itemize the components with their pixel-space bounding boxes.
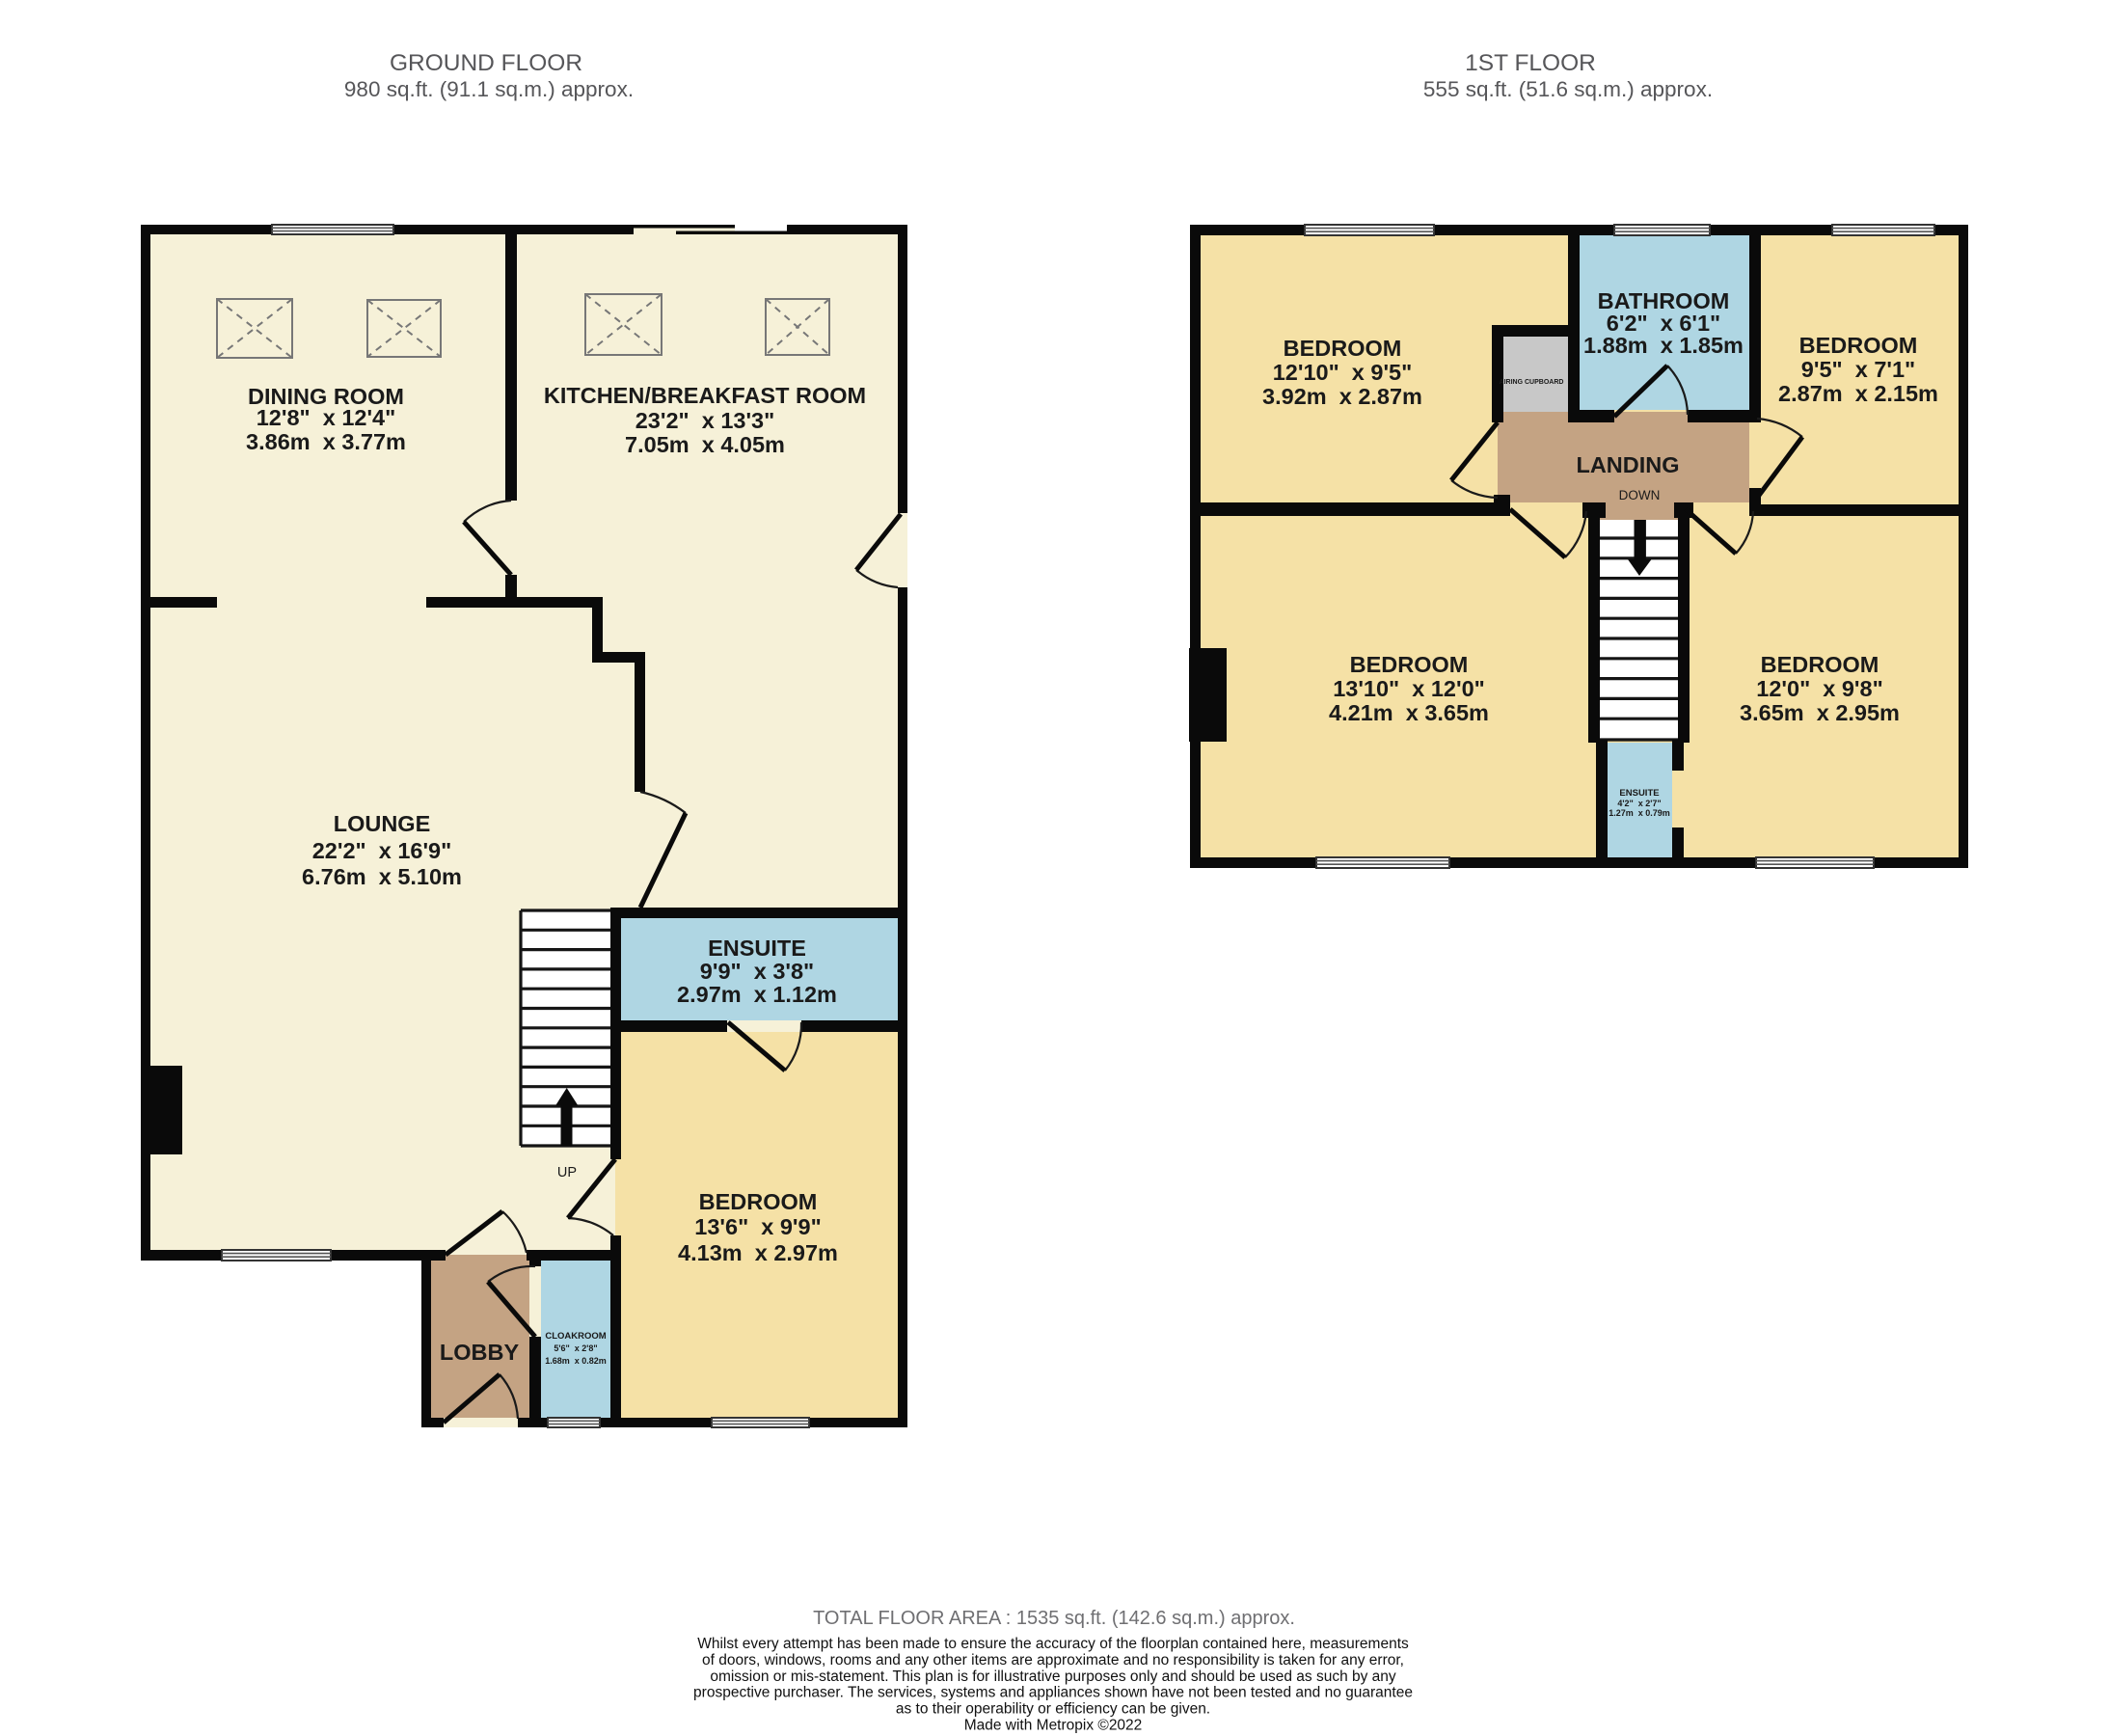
svg-text:TOTAL FLOOR AREA : 1535 sq.ft.: TOTAL FLOOR AREA : 1535 sq.ft. (142.6 sq… bbox=[813, 1608, 1295, 1629]
svg-text:9'9" x 3'8": 9'9" x 3'8" bbox=[700, 959, 814, 984]
svg-text:2.87m x 2.15m: 2.87m x 2.15m bbox=[1778, 381, 1938, 406]
svg-text:3.65m x 2.95m: 3.65m x 2.95m bbox=[1740, 700, 1900, 725]
svg-text:12'8" x 12'4": 12'8" x 12'4" bbox=[257, 405, 396, 430]
svg-text:555 sq.ft. (51.6 sq.m.) approx: 555 sq.ft. (51.6 sq.m.) approx. bbox=[1423, 77, 1713, 101]
svg-text:AIRING CUPBOARD: AIRING CUPBOARD bbox=[1500, 379, 1564, 386]
svg-text:4.13m x 2.97m: 4.13m x 2.97m bbox=[678, 1240, 838, 1265]
svg-text:UP: UP bbox=[557, 1165, 577, 1180]
svg-text:2.97m x 1.12m: 2.97m x 1.12m bbox=[677, 982, 837, 1007]
svg-text:4.21m x 3.65m: 4.21m x 3.65m bbox=[1329, 700, 1489, 725]
svg-text:4'2" x 2'7": 4'2" x 2'7" bbox=[1617, 799, 1661, 808]
svg-text:ENSUITE: ENSUITE bbox=[1619, 788, 1659, 799]
svg-text:12'0" x 9'8": 12'0" x 9'8" bbox=[1756, 676, 1882, 701]
svg-text:1.88m x 1.85m: 1.88m x 1.85m bbox=[1583, 333, 1744, 358]
svg-text:23'2" x 13'3": 23'2" x 13'3" bbox=[635, 408, 775, 433]
svg-text:5'6" x 2'8": 5'6" x 2'8" bbox=[554, 1343, 597, 1353]
svg-text:LANDING: LANDING bbox=[1576, 452, 1679, 477]
svg-text:of doors, windows, rooms and a: of doors, windows, rooms and any other i… bbox=[702, 1652, 1404, 1668]
svg-text:DOWN: DOWN bbox=[1619, 488, 1661, 502]
svg-text:7.05m x 4.05m: 7.05m x 4.05m bbox=[625, 432, 785, 457]
svg-text:GROUND FLOOR: GROUND FLOOR bbox=[390, 50, 582, 76]
svg-text:Whilst every attempt has been: Whilst every attempt has been made to en… bbox=[697, 1636, 1409, 1652]
svg-text:1.68m x 0.82m: 1.68m x 0.82m bbox=[545, 1356, 607, 1366]
svg-text:BEDROOM: BEDROOM bbox=[1799, 333, 1918, 358]
svg-text:13'6" x 9'9": 13'6" x 9'9" bbox=[694, 1214, 821, 1239]
svg-text:BEDROOM: BEDROOM bbox=[699, 1189, 818, 1214]
svg-text:12'10" x 9'5": 12'10" x 9'5" bbox=[1273, 360, 1413, 385]
svg-text:13'10" x 12'0": 13'10" x 12'0" bbox=[1333, 676, 1485, 701]
svg-text:1ST FLOOR: 1ST FLOOR bbox=[1465, 50, 1596, 76]
svg-text:as to their operability or eff: as to their operability or efficiency ca… bbox=[896, 1701, 1210, 1718]
svg-text:22'2" x 16'9": 22'2" x 16'9" bbox=[312, 838, 452, 863]
svg-text:LOBBY: LOBBY bbox=[440, 1340, 520, 1365]
svg-text:3.86m x 3.77m: 3.86m x 3.77m bbox=[246, 429, 406, 454]
svg-text:CLOAKROOM: CLOAKROOM bbox=[545, 1331, 606, 1342]
svg-text:ENSUITE: ENSUITE bbox=[708, 936, 806, 961]
svg-text:LOUNGE: LOUNGE bbox=[334, 811, 431, 836]
svg-text:6.76m x 5.10m: 6.76m x 5.10m bbox=[302, 864, 462, 889]
svg-text:9'5" x 7'1": 9'5" x 7'1" bbox=[1801, 357, 1915, 382]
svg-text:BEDROOM: BEDROOM bbox=[1350, 652, 1469, 677]
svg-text:omission or mis-statement. Thi: omission or mis-statement. This plan is … bbox=[710, 1668, 1396, 1685]
svg-text:980 sq.ft. (91.1 sq.m.) approx: 980 sq.ft. (91.1 sq.m.) approx. bbox=[344, 77, 634, 101]
svg-text:3.92m x 2.87m: 3.92m x 2.87m bbox=[1262, 384, 1422, 409]
svg-text:1.27m x 0.79m: 1.27m x 0.79m bbox=[1609, 808, 1670, 818]
svg-text:Made with Metropix ©2022: Made with Metropix ©2022 bbox=[964, 1718, 1143, 1734]
svg-text:BEDROOM: BEDROOM bbox=[1761, 652, 1879, 677]
svg-text:KITCHEN/BREAKFAST ROOM: KITCHEN/BREAKFAST ROOM bbox=[544, 383, 866, 408]
svg-text:BEDROOM: BEDROOM bbox=[1284, 336, 1402, 361]
svg-text:prospective purchaser. The ser: prospective purchaser. The services, sys… bbox=[693, 1685, 1413, 1701]
